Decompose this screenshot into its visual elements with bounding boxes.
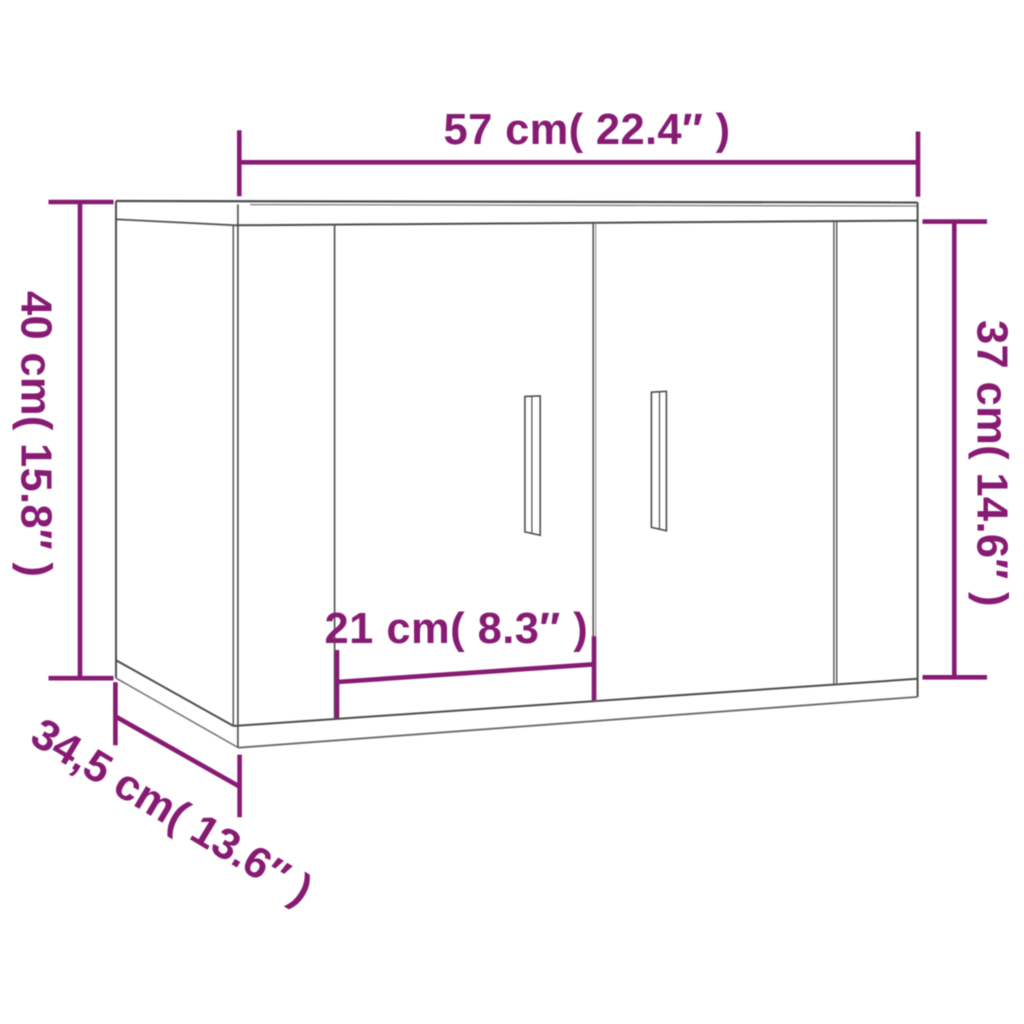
svg-text:21 cm( 8.3″ ): 21 cm( 8.3″ )	[325, 605, 589, 653]
svg-text:40 cm( 15.8″ ): 40 cm( 15.8″ )	[12, 291, 60, 577]
svg-text:57 cm( 22.4″ ): 57 cm( 22.4″ )	[444, 106, 731, 154]
svg-text:37 cm( 14.6″ ): 37 cm( 14.6″ )	[968, 320, 1016, 607]
